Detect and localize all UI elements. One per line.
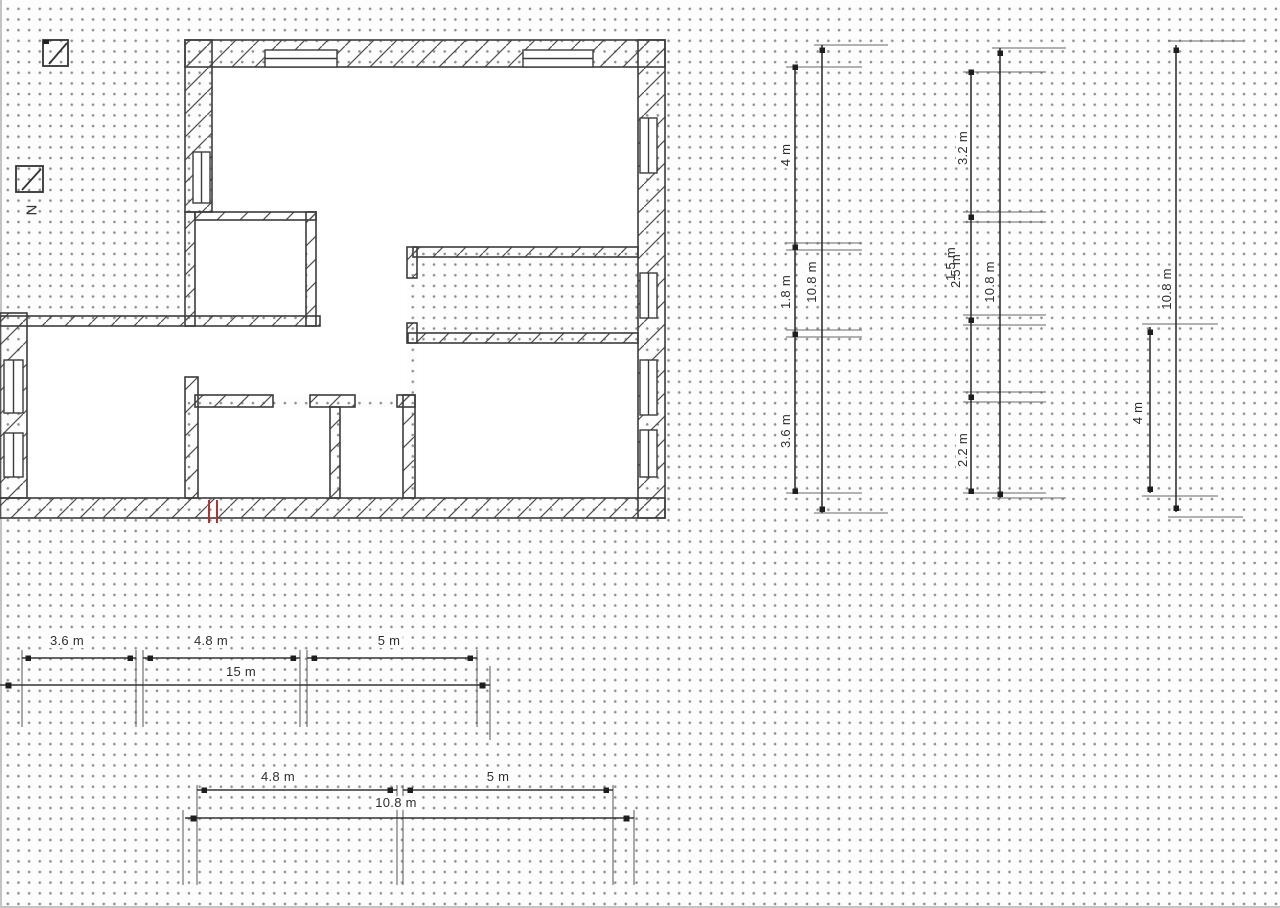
wall-outer-bottom[interactable] [0,498,665,518]
window-right-2[interactable] [640,273,657,318]
dim-label-v2-seg1[interactable]: 3.2 m [956,129,970,167]
dim-label-v1-seg2[interactable]: 1.8 m [779,273,793,311]
wall-stub-midroom-door-upper[interactable] [407,247,417,278]
window-top-1[interactable] [265,50,337,67]
floor-annex-room [27,326,185,498]
wall-smallrooms-divider[interactable] [330,407,340,498]
dim-label-h2-seg1[interactable]: 4.8 m [259,770,297,784]
wall-annex-top[interactable] [0,316,320,326]
window-annex-1[interactable] [4,360,23,413]
floor-left-middle-room [195,220,306,316]
wall-outer-left-lower[interactable] [185,212,195,326]
dim-label-v1-seg1[interactable]: 4 m [779,142,793,169]
dim-label-v1-total[interactable]: 10.8 m [805,259,819,305]
dim-label-h2-seg2[interactable]: 5 m [485,770,512,784]
dim-label-v2-seg4[interactable]: 2.2 m [956,431,970,469]
floor-plan-drawing [0,0,1280,908]
wall-smallrooms-top-b[interactable] [310,395,355,407]
origin-square-notch [43,40,49,44]
dim-label-h1-seg3[interactable]: 5 m [376,634,403,648]
dim-label-v2-seg3[interactable]: 1.5 m [944,245,958,283]
dimension-group-right-2[interactable] [963,48,1066,498]
floor-small-room-2 [340,407,403,498]
cad-app-canvas-screenshot: { "app": { "view": "floor-plan-drawing-c… [0,0,1280,908]
north-square[interactable] [16,166,43,192]
dim-label-h1-seg1[interactable]: 3.6 m [48,634,86,648]
dim-label-h1-total[interactable]: 15 m [224,665,258,679]
dimension-group-right-1[interactable] [786,45,888,513]
window-top-2[interactable] [523,50,593,67]
floor-hall-lower [185,326,407,395]
floor-bottom-right-room [417,343,638,498]
wall-interior-midroom-bottom[interactable] [408,333,638,343]
floor-small-room-1 [198,407,330,498]
dim-label-v1-seg3[interactable]: 3.6 m [779,412,793,450]
window-right-4[interactable] [640,430,657,477]
wall-smallrooms-top-a[interactable] [195,395,273,407]
wall-interior-room2-right[interactable] [306,212,316,326]
wall-smallrooms-right[interactable] [403,395,415,498]
dim-label-v2-total[interactable]: 10.8 m [983,259,997,305]
north-symbol[interactable] [16,40,68,192]
wall-interior-room2-top[interactable] [195,212,316,220]
wall-stub-midroom-door-lower[interactable] [407,323,417,343]
dim-label-h2-total[interactable]: 10.8 m [373,796,419,810]
wall-interior-midroom-top[interactable] [413,247,638,257]
window-right-1[interactable] [640,118,657,173]
dim-label-v3-seg1[interactable]: 4 m [1131,400,1145,427]
window-annex-2[interactable] [4,433,23,477]
dim-label-v3-total[interactable]: 10.8 m [1160,266,1174,312]
dim-label-h1-seg2[interactable]: 4.8 m [192,634,230,648]
north-letter: N [23,205,40,216]
window-right-3[interactable] [640,360,657,415]
window-left-main[interactable] [193,152,210,203]
dimension-group-right-3[interactable] [1142,41,1243,517]
